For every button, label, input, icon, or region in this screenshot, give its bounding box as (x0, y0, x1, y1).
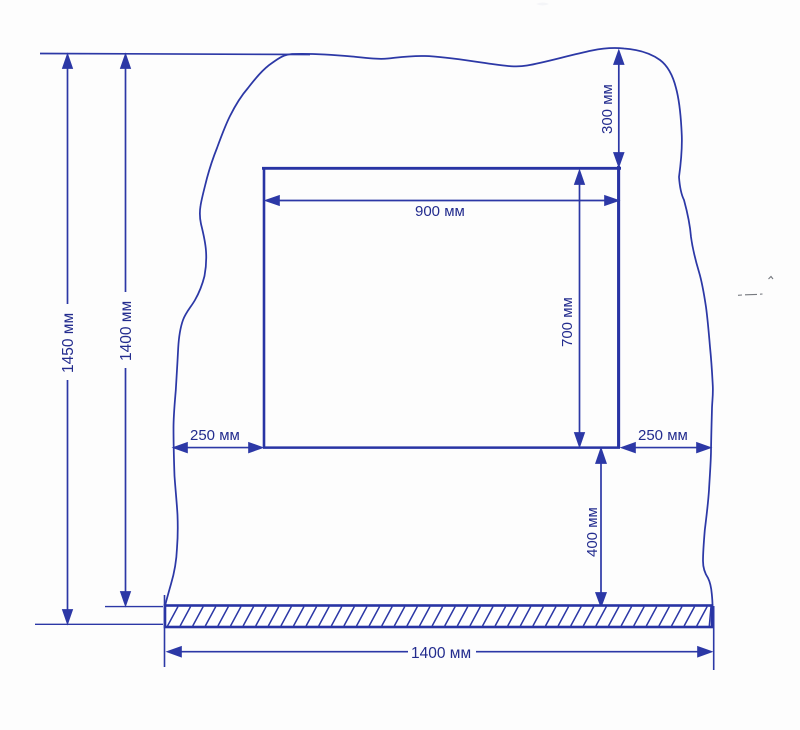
svg-text:400 мм: 400 мм (584, 507, 601, 557)
svg-text:700 мм: 700 мм (559, 297, 576, 347)
svg-text:1400 мм: 1400 мм (411, 645, 471, 662)
svg-text:1450 мм: 1450 мм (60, 313, 77, 373)
svg-text:250 мм: 250 мм (638, 427, 688, 444)
svg-text:250 мм: 250 мм (190, 427, 240, 444)
svg-text:900 мм: 900 мм (415, 203, 465, 220)
svg-text:300 мм: 300 мм (599, 84, 616, 134)
svg-text:1400 мм: 1400 мм (118, 301, 135, 361)
